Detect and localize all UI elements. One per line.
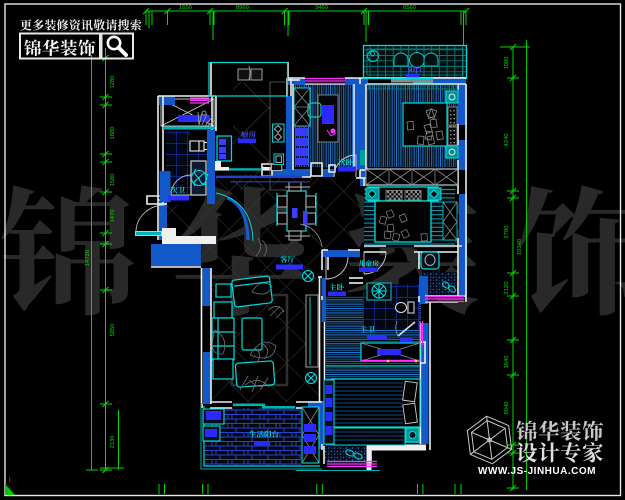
svg-text:1650: 1650 bbox=[179, 5, 192, 11]
svg-text:2130: 2130 bbox=[110, 436, 116, 449]
svg-text:1580: 1580 bbox=[110, 174, 116, 187]
svg-text:1470: 1470 bbox=[110, 210, 116, 223]
svg-text:1880: 1880 bbox=[110, 127, 116, 140]
svg-text:WWW.JS-JINHUA.COM: WWW.JS-JINHUA.COM bbox=[478, 466, 596, 477]
svg-text:1280: 1280 bbox=[110, 76, 116, 89]
svg-text:3460: 3460 bbox=[315, 5, 328, 11]
svg-text:1080: 1080 bbox=[504, 57, 510, 70]
svg-text:5850: 5850 bbox=[110, 324, 116, 337]
svg-text:8040: 8040 bbox=[504, 402, 510, 415]
svg-text:8960: 8960 bbox=[236, 5, 249, 11]
svg-text:6560: 6560 bbox=[403, 5, 416, 11]
svg-text:14720: 14720 bbox=[85, 250, 91, 266]
svg-text:4240: 4240 bbox=[504, 134, 510, 147]
svg-text:2780: 2780 bbox=[504, 226, 510, 239]
svg-text:1640: 1640 bbox=[504, 356, 510, 369]
svg-text:2120: 2120 bbox=[504, 282, 510, 295]
svg-text:15340: 15340 bbox=[517, 239, 523, 255]
